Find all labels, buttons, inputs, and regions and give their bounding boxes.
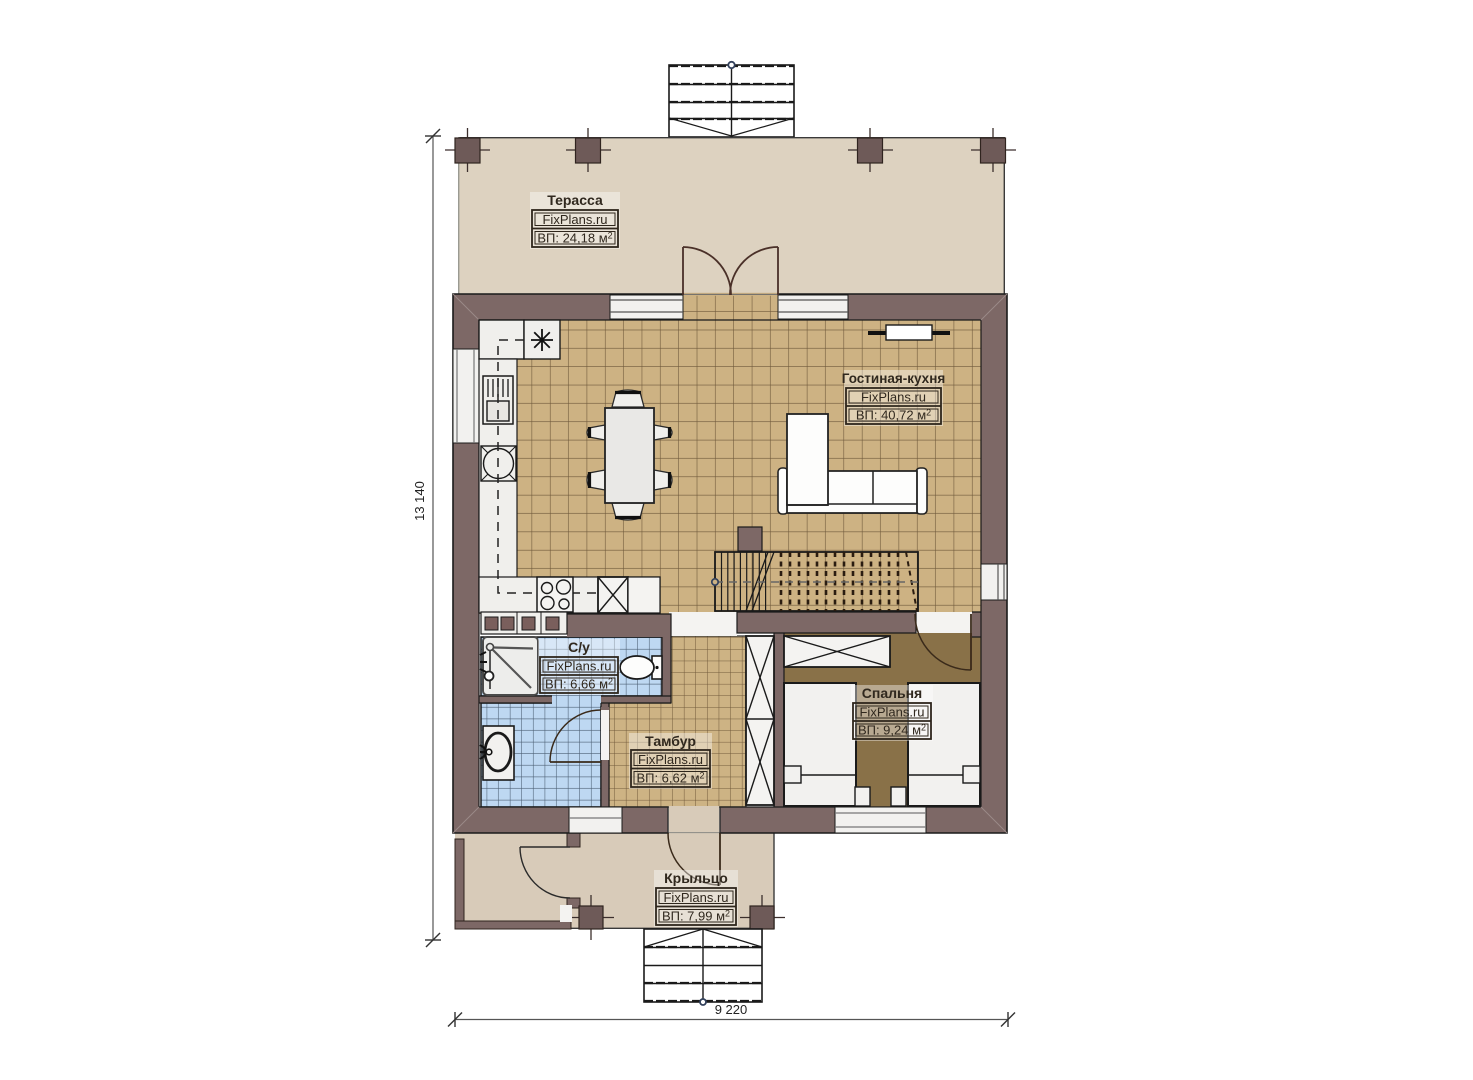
svg-text:ВП: 9,24 м2: ВП: 9,24 м2 xyxy=(858,723,926,738)
svg-text:ВП: 24,18 м2: ВП: 24,18 м2 xyxy=(537,231,612,246)
svg-text:FixPlans.ru: FixPlans.ru xyxy=(663,890,728,905)
svg-text:FixPlans.ru: FixPlans.ru xyxy=(546,659,611,674)
svg-text:Спальня: Спальня xyxy=(862,685,922,701)
svg-text:Гостиная-кухня: Гостиная-кухня xyxy=(842,371,945,386)
svg-text:ВП: 7,99 м2: ВП: 7,99 м2 xyxy=(662,909,730,924)
svg-text:Терасса: Терасса xyxy=(547,192,603,208)
svg-text:FixPlans.ru: FixPlans.ru xyxy=(638,752,703,767)
svg-text:FixPlans.ru: FixPlans.ru xyxy=(542,212,607,227)
svg-text:ВП: 40,72 м2: ВП: 40,72 м2 xyxy=(856,408,931,423)
svg-text:13 140: 13 140 xyxy=(412,481,427,521)
svg-text:FixPlans.ru: FixPlans.ru xyxy=(859,705,924,720)
svg-text:ВП: 6,66 м2: ВП: 6,66 м2 xyxy=(545,677,613,692)
svg-text:С/у: С/у xyxy=(568,639,590,655)
svg-text:ВП: 6,62 м2: ВП: 6,62 м2 xyxy=(636,771,704,786)
svg-text:Тамбур: Тамбур xyxy=(645,733,696,749)
svg-text:FixPlans.ru: FixPlans.ru xyxy=(861,390,926,405)
svg-text:Крыльцо: Крыльцо xyxy=(664,870,728,886)
svg-text:9 220: 9 220 xyxy=(715,1002,748,1017)
